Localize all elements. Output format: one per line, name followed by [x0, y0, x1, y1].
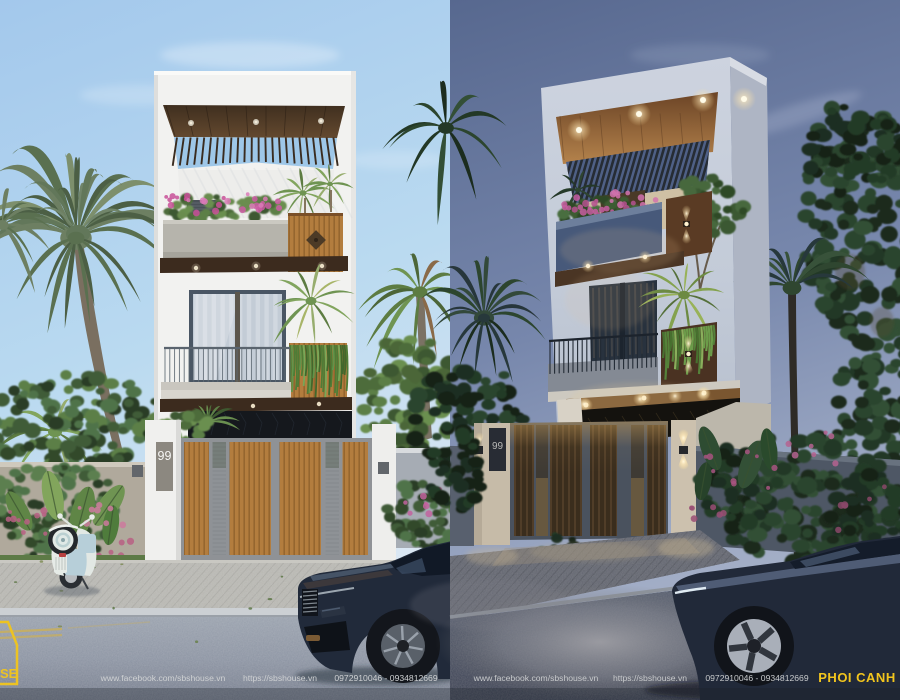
- svg-text:99: 99: [158, 449, 172, 463]
- svg-text:https://sbshouse.vn: https://sbshouse.vn: [613, 673, 687, 683]
- svg-text:SE: SE: [0, 666, 18, 681]
- svg-text:0972910046 - 0934812669: 0972910046 - 0934812669: [334, 673, 437, 683]
- svg-text:PHOI CANH: PHOI CANH: [818, 670, 895, 685]
- svg-text:www.facebook.com/sbshouse.vn: www.facebook.com/sbshouse.vn: [473, 673, 599, 683]
- svg-text:99: 99: [492, 441, 504, 452]
- svg-text:0972910046 - 0934812669: 0972910046 - 0934812669: [705, 673, 808, 683]
- svg-text:https://sbshouse.vn: https://sbshouse.vn: [243, 673, 317, 683]
- svg-text:www.facebook.com/sbshouse.vn: www.facebook.com/sbshouse.vn: [100, 673, 226, 683]
